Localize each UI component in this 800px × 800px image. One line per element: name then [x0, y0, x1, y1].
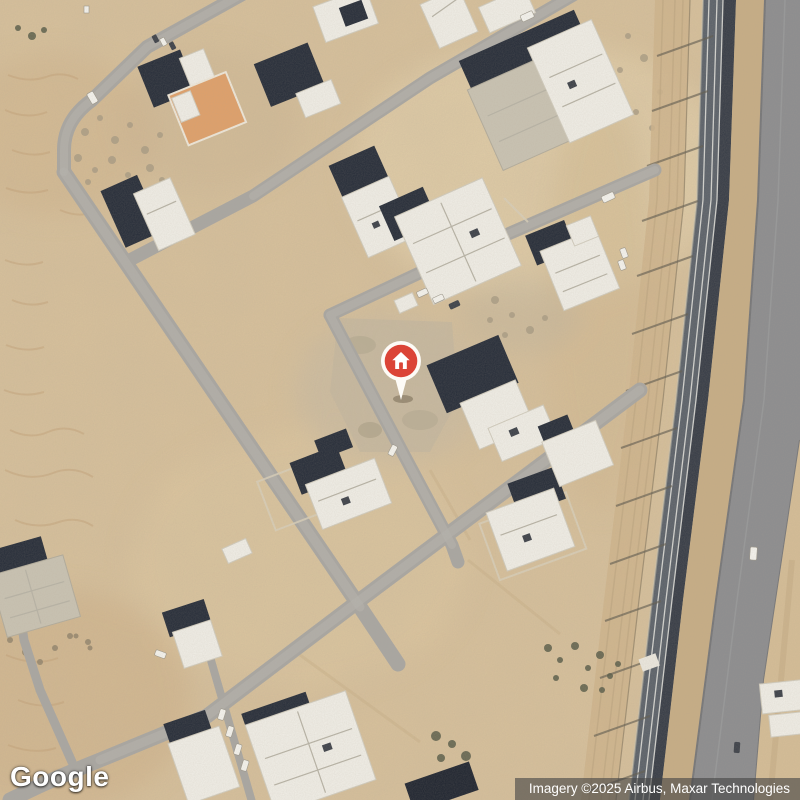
satellite-imagery[interactable] [0, 0, 800, 800]
imagery-attribution: Imagery ©2025 Airbus, Maxar Technologies [515, 778, 800, 800]
map-viewport[interactable]: Google Imagery ©2025 Airbus, Maxar Techn… [0, 0, 800, 800]
google-logo[interactable]: Google [10, 761, 109, 793]
attribution-text: Imagery ©2025 Airbus, Maxar Technologies [529, 781, 790, 796]
